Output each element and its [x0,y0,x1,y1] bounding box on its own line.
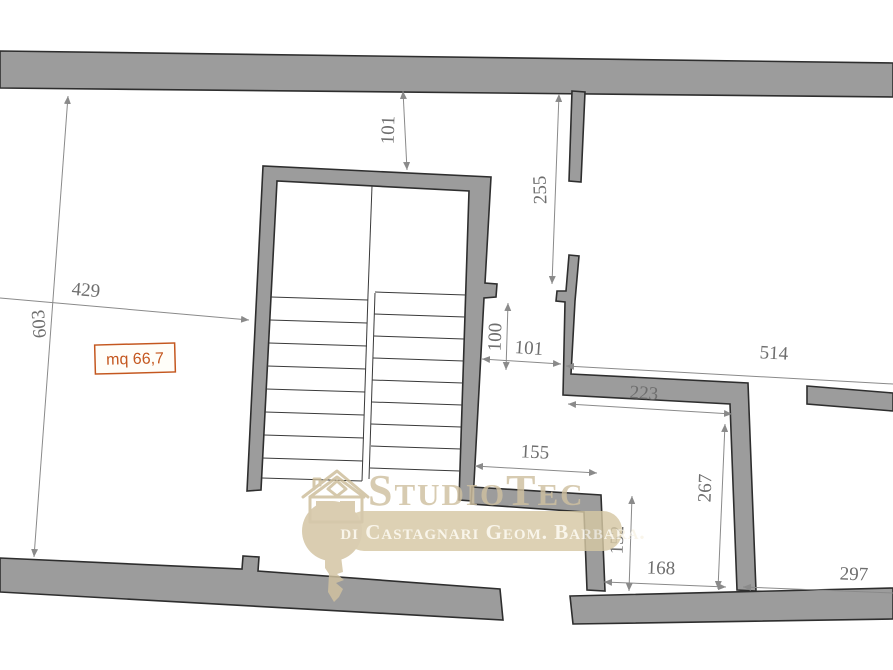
dimension-label: 429 [71,279,101,302]
dimension-room-left-height: 603 [28,96,68,557]
wall-middle-upper [569,91,585,182]
dimension-label: 168 [646,558,675,580]
floor-plan-drawing: 101 255 429 603 100 101 514 223 [0,0,893,670]
dimension-label: 603 [28,309,51,339]
watermark-brand: StudioTec [368,466,585,515]
dimension-label: 101 [378,115,400,144]
dimension-upper-right-wall: 255 [530,94,559,284]
area-label-text: mq 66,7 [106,350,164,369]
wall-bottom-right [570,588,893,624]
dimension-label: 267 [695,473,717,502]
dimension-label: 100 [485,322,507,351]
watermark-subtitle: di Castagnari Geom. Barbara. [340,520,645,544]
staircase-treads [262,186,466,481]
dimension-stair-top-offset: 101 [378,91,407,170]
floor-plan-page: 101 255 429 603 100 101 514 223 [0,0,893,670]
dimension-lower-center-width: 168 [604,558,726,587]
stair-landing-divider [368,186,372,295]
dimension-lower-right-room-height: 267 [695,424,725,589]
stair-divider-right [369,293,375,479]
dimension-label: 155 [520,441,550,463]
area-label: mq 66,7 [95,343,176,374]
house-window-left [316,501,331,514]
dimension-label: 255 [530,175,552,204]
dimension-label: 223 [629,382,659,405]
wall-right-segment [807,386,893,411]
dimension-label: 514 [759,342,789,364]
dimension-label: 101 [514,337,544,360]
house-window-right [340,501,355,514]
wall-top [0,51,893,97]
dimension-label: 297 [839,564,868,586]
wall-bottom-left [0,556,503,620]
wall-staircase-enclosure [247,166,497,501]
